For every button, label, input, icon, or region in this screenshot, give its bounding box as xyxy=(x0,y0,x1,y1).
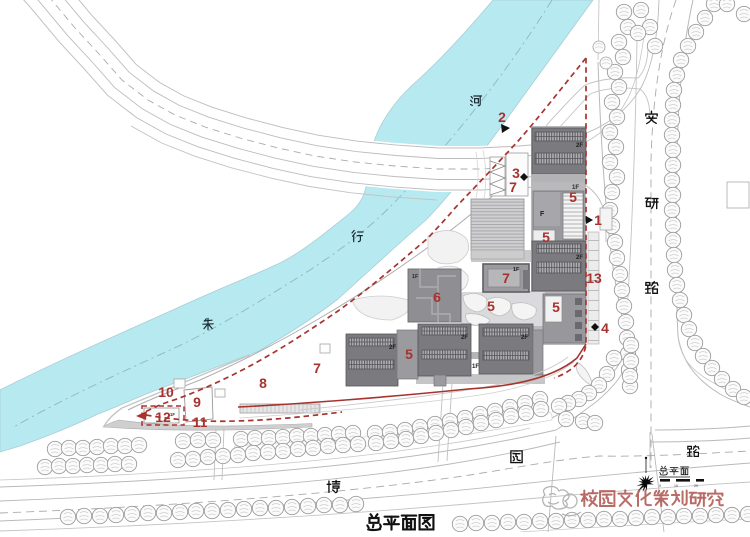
svg-text:7: 7 xyxy=(313,360,321,376)
svg-text:2F: 2F xyxy=(389,345,396,351)
svg-text:10: 10 xyxy=(674,484,678,488)
svg-text:9: 9 xyxy=(193,394,201,410)
svg-text:10: 10 xyxy=(158,384,174,400)
svg-text:2F: 2F xyxy=(576,255,583,261)
svg-text:4: 4 xyxy=(601,320,609,336)
svg-text:11: 11 xyxy=(193,414,208,430)
svg-text:1: 1 xyxy=(594,212,602,228)
svg-text:5: 5 xyxy=(405,346,413,362)
svg-text:2: 2 xyxy=(498,109,506,125)
svg-text:1F: 1F xyxy=(170,412,175,417)
svg-text:5: 5 xyxy=(569,189,577,205)
svg-text:1F: 1F xyxy=(412,274,419,280)
svg-text:7: 7 xyxy=(509,179,517,195)
svg-text:13: 13 xyxy=(586,270,602,286)
svg-text:6: 6 xyxy=(433,289,441,305)
svg-text:7: 7 xyxy=(502,270,510,286)
svg-text:8: 8 xyxy=(259,375,267,391)
svg-text:2F: 2F xyxy=(521,335,528,341)
svg-text:2F: 2F xyxy=(461,335,468,341)
svg-text:1F: 1F xyxy=(513,267,520,273)
svg-text:2F: 2F xyxy=(576,143,583,149)
svg-text:20: 20 xyxy=(694,484,698,488)
svg-text:0: 0 xyxy=(659,484,661,488)
svg-text:1F: 1F xyxy=(472,364,479,370)
svg-text:12: 12 xyxy=(155,409,171,425)
svg-text:5: 5 xyxy=(552,299,560,315)
svg-text:F: F xyxy=(540,211,545,218)
svg-text:5: 5 xyxy=(487,298,495,314)
svg-text:5: 5 xyxy=(542,229,550,245)
